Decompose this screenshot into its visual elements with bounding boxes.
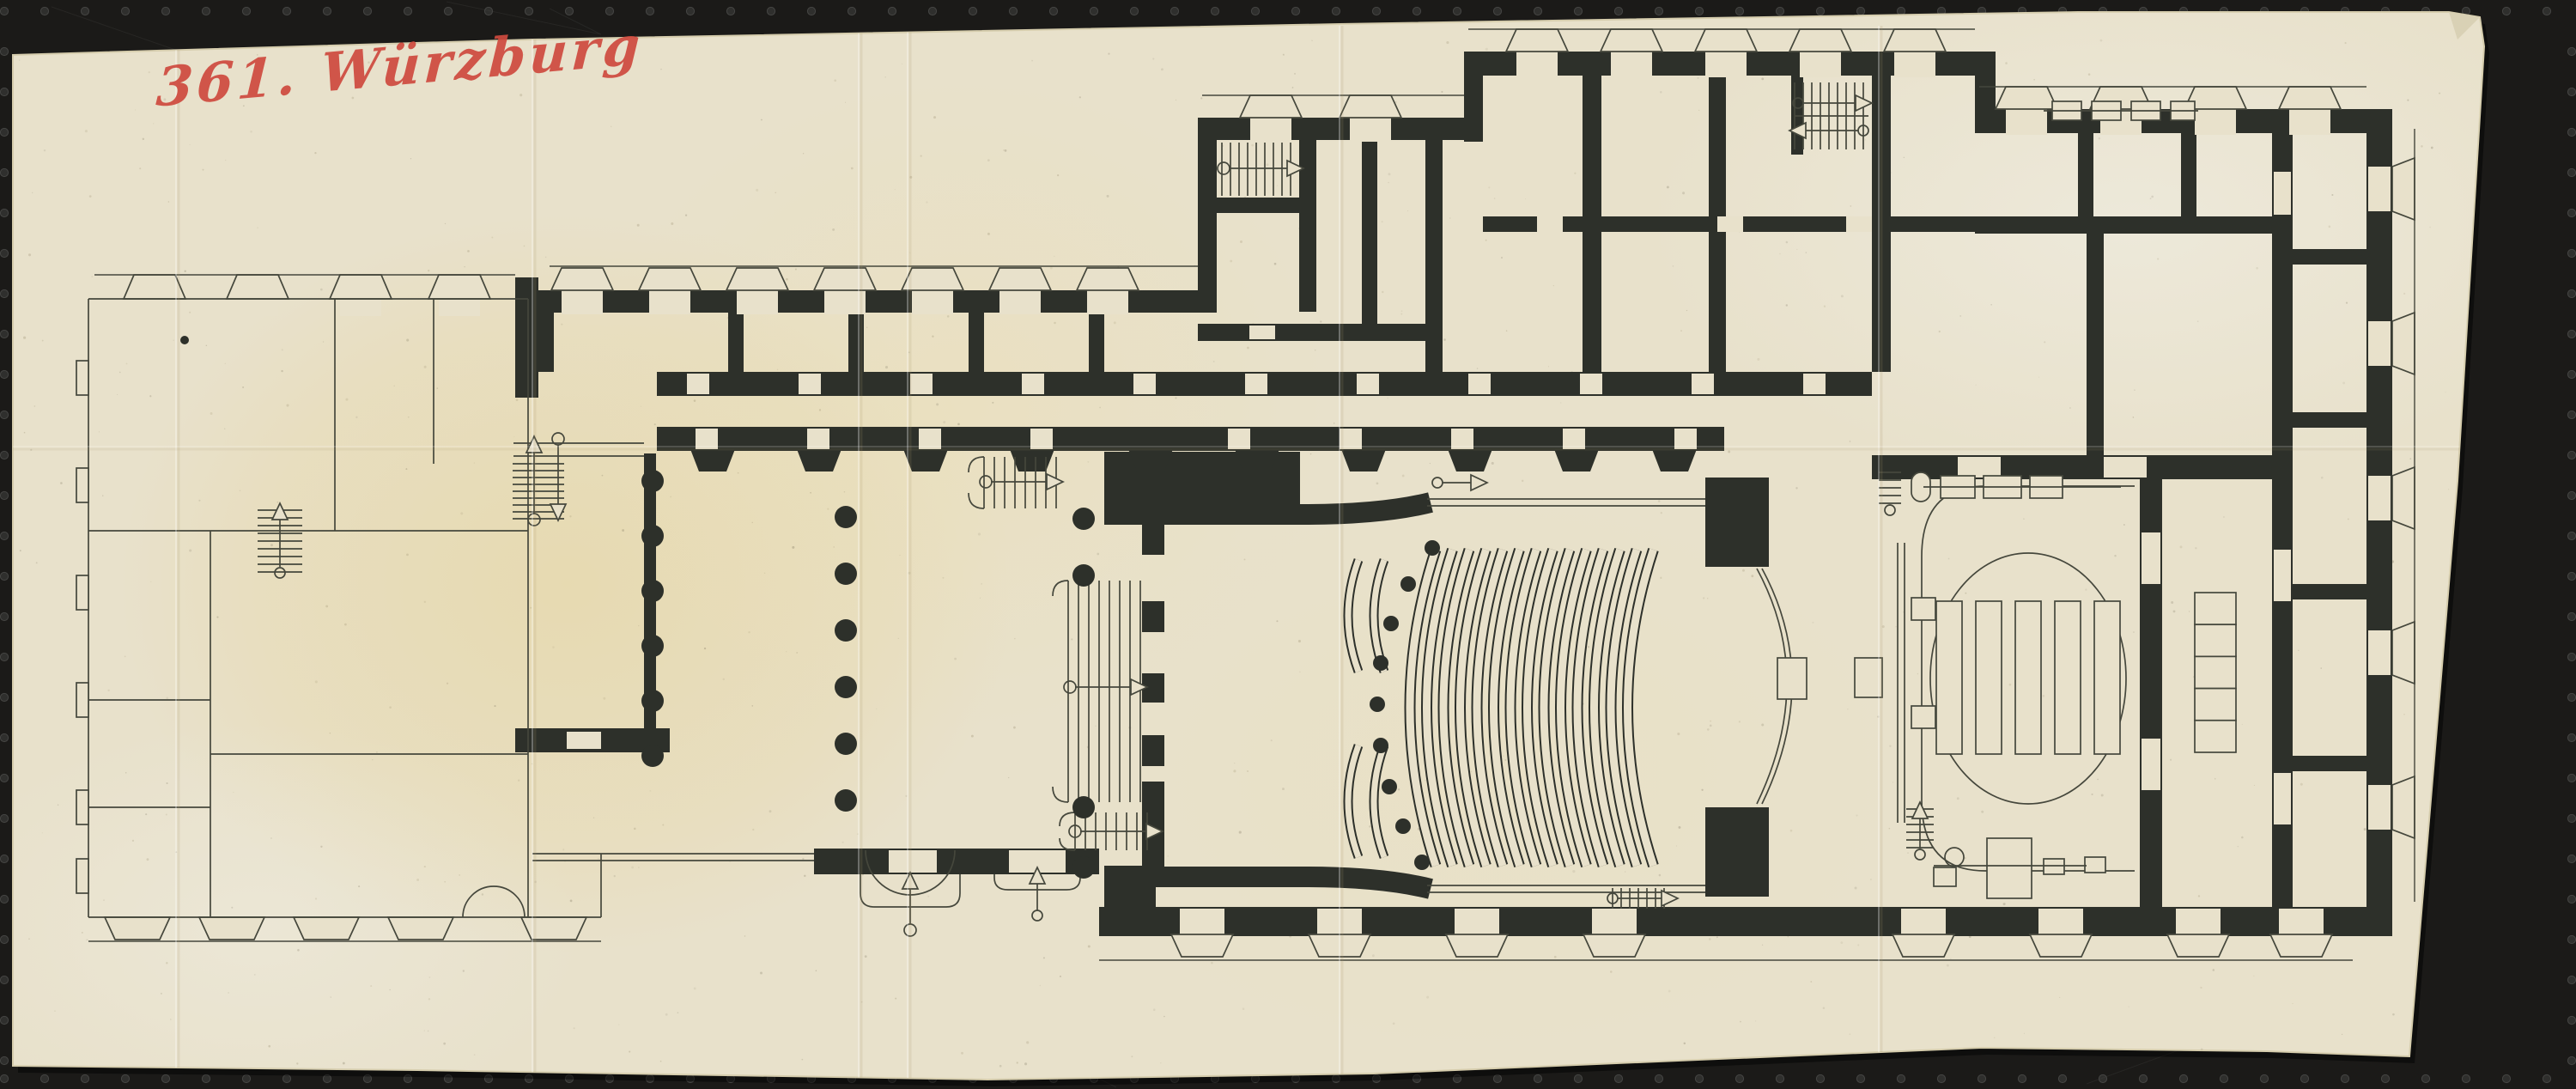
foyer-middle-columns — [835, 789, 857, 812]
foyer-middle-columns — [835, 676, 857, 698]
auditorium-rear-columns — [1072, 856, 1095, 879]
prompter-box — [1777, 658, 1807, 699]
foyer-west-columns — [641, 470, 664, 492]
backstage-furniture — [2044, 101, 2198, 120]
foyer-middle-columns — [835, 563, 857, 585]
auditorium-north-wall — [1104, 502, 1431, 514]
ink-blot — [180, 336, 189, 344]
auditorium-south-wall — [1104, 877, 1431, 889]
floor-plan-scan: 361. Würzburg — [0, 0, 2576, 1089]
foyer-west-columns — [641, 580, 664, 602]
foyer-middle-columns — [835, 619, 857, 642]
foyer-west-columns — [641, 635, 664, 657]
backstage-cell-squares — [2195, 593, 2236, 752]
foyer-middle-columns — [835, 506, 857, 528]
auditorium-rear-columns — [1072, 796, 1095, 818]
auditorium-rear-columns — [1072, 508, 1095, 530]
auditorium-rear-columns — [1072, 564, 1095, 587]
foyer-west-columns — [641, 745, 664, 767]
foyer-middle-columns — [835, 733, 857, 755]
foyer-west-columns — [641, 525, 664, 547]
foyer-west-columns — [641, 690, 664, 712]
